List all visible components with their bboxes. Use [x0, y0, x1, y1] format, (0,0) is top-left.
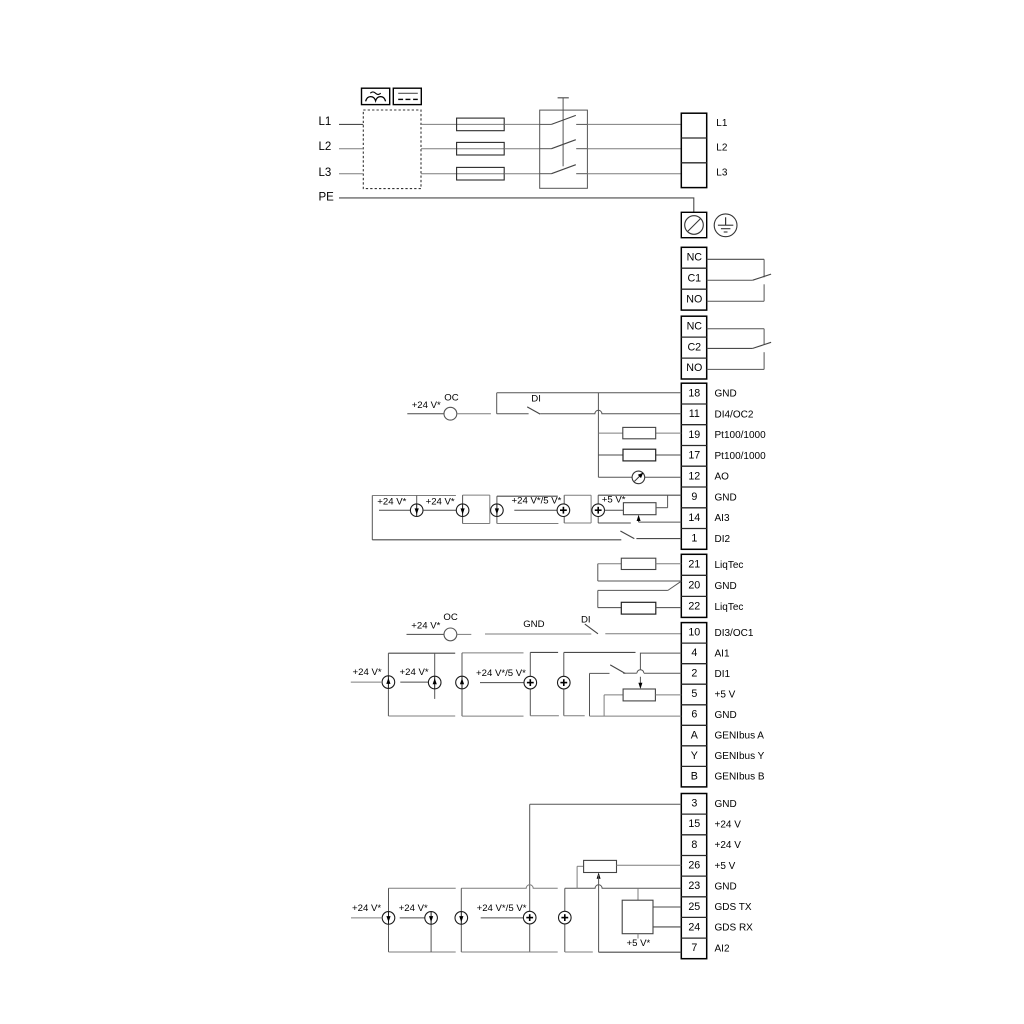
- svg-text:21: 21: [688, 559, 700, 571]
- svg-text:GND: GND: [715, 799, 737, 810]
- svg-text:LiqTec: LiqTec: [715, 560, 744, 571]
- svg-text:6: 6: [691, 709, 697, 721]
- svg-text:+24 V*: +24 V*: [377, 496, 406, 507]
- svg-text:10: 10: [688, 627, 700, 639]
- svg-text:+24 V*/5 V*: +24 V*/5 V*: [477, 903, 527, 914]
- svg-text:AO: AO: [715, 472, 730, 483]
- svg-text:+24 V*: +24 V*: [399, 903, 428, 914]
- svg-text:+24 V*: +24 V*: [412, 400, 441, 411]
- svg-text:GND: GND: [715, 492, 737, 503]
- svg-text:L2: L2: [319, 141, 332, 153]
- svg-text:DI4/OC2: DI4/OC2: [715, 409, 754, 420]
- svg-text:17: 17: [688, 450, 700, 462]
- svg-text:GDS RX: GDS RX: [715, 923, 754, 934]
- svg-text:5: 5: [691, 688, 697, 700]
- svg-text:GND: GND: [715, 710, 737, 721]
- svg-text:GENIbus Y: GENIbus Y: [715, 751, 765, 762]
- svg-text:GND: GND: [523, 619, 544, 630]
- svg-text:OC: OC: [443, 612, 457, 623]
- svg-text:Pt100/1000: Pt100/1000: [715, 430, 767, 441]
- svg-text:C1: C1: [687, 272, 701, 284]
- svg-text:+24 V*: +24 V*: [411, 620, 440, 631]
- svg-text:+24 V*: +24 V*: [400, 667, 429, 678]
- svg-text:+24 V*: +24 V*: [353, 667, 382, 678]
- svg-text:L1: L1: [319, 116, 332, 128]
- svg-text:L3: L3: [716, 167, 728, 178]
- svg-text:GDS TX: GDS TX: [715, 902, 752, 913]
- svg-text:GND: GND: [715, 881, 737, 892]
- svg-text:4: 4: [691, 647, 697, 659]
- svg-text:L2: L2: [716, 142, 728, 153]
- svg-text:AI3: AI3: [715, 513, 730, 524]
- svg-text:+5 V*: +5 V*: [602, 494, 626, 505]
- svg-text:NO: NO: [686, 362, 702, 374]
- svg-text:DI: DI: [531, 394, 541, 405]
- svg-text:AI2: AI2: [715, 943, 730, 954]
- svg-text:20: 20: [688, 580, 700, 592]
- svg-text:L1: L1: [716, 118, 728, 129]
- svg-text:PE: PE: [319, 192, 335, 204]
- svg-text:C2: C2: [687, 341, 701, 353]
- svg-text:GND: GND: [715, 389, 737, 400]
- svg-text:+5 V: +5 V: [715, 690, 736, 701]
- svg-text:NC: NC: [687, 252, 703, 264]
- svg-text:2: 2: [691, 668, 697, 680]
- svg-text:9: 9: [691, 491, 697, 503]
- svg-text:19: 19: [688, 429, 700, 441]
- svg-text:GENIbus A: GENIbus A: [715, 731, 765, 742]
- svg-text:AI1: AI1: [715, 648, 730, 659]
- svg-text:+24 V: +24 V: [715, 820, 742, 831]
- svg-text:DI: DI: [581, 614, 591, 625]
- svg-text:+5 V*: +5 V*: [627, 938, 651, 949]
- svg-text:DI1: DI1: [715, 669, 731, 680]
- svg-text:Y: Y: [691, 750, 698, 762]
- svg-text:8: 8: [691, 839, 697, 851]
- svg-text:A: A: [691, 729, 699, 741]
- svg-text:1: 1: [691, 533, 697, 545]
- svg-text:+24 V*/5 V*: +24 V*/5 V*: [512, 496, 562, 507]
- svg-text:OC: OC: [444, 392, 458, 403]
- svg-text:26: 26: [688, 860, 700, 872]
- svg-text:GENIbus B: GENIbus B: [715, 772, 765, 783]
- svg-text:GND: GND: [715, 581, 737, 592]
- svg-text:12: 12: [688, 470, 700, 482]
- svg-text:L3: L3: [319, 167, 332, 179]
- svg-text:23: 23: [688, 880, 700, 892]
- svg-text:+24 V*/5 V*: +24 V*/5 V*: [476, 668, 526, 679]
- svg-text:18: 18: [688, 387, 700, 399]
- svg-text:+24 V*: +24 V*: [352, 903, 381, 914]
- svg-text:Pt100/1000: Pt100/1000: [715, 451, 767, 462]
- svg-text:+24 V: +24 V: [715, 840, 742, 851]
- svg-text:7: 7: [691, 942, 697, 954]
- svg-text:25: 25: [688, 901, 700, 913]
- svg-text:+24 V*: +24 V*: [426, 496, 455, 507]
- svg-text:22: 22: [688, 601, 700, 613]
- svg-text:DI2: DI2: [715, 534, 731, 545]
- svg-text:NC: NC: [687, 320, 703, 332]
- svg-text:LiqTec: LiqTec: [715, 602, 744, 613]
- svg-text:DI3/OC1: DI3/OC1: [715, 628, 754, 639]
- svg-text:11: 11: [689, 408, 700, 420]
- svg-text:+5 V: +5 V: [715, 861, 736, 872]
- svg-text:B: B: [691, 770, 698, 782]
- svg-text:14: 14: [688, 512, 700, 524]
- svg-text:24: 24: [688, 921, 700, 933]
- svg-text:15: 15: [688, 818, 700, 830]
- svg-text:NO: NO: [686, 293, 702, 305]
- svg-text:3: 3: [691, 798, 697, 810]
